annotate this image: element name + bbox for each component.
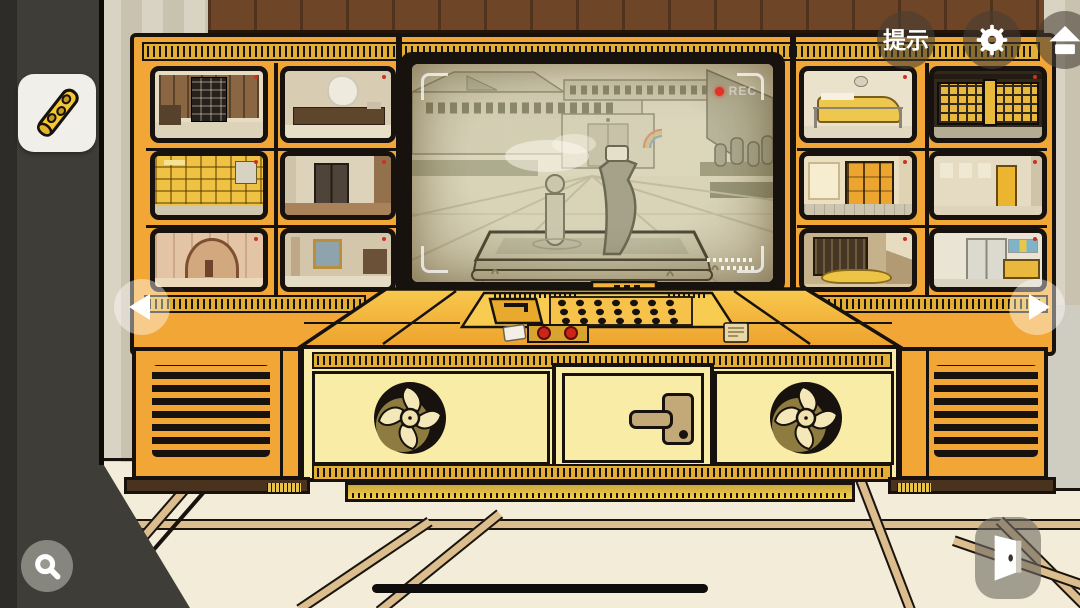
camera-feed-screen: REC bbox=[412, 64, 773, 282]
timestamp-dots bbox=[721, 266, 755, 270]
home-indicator bbox=[372, 584, 708, 593]
game-screen: REC bbox=[0, 0, 1080, 608]
dark-wall-edge bbox=[0, 0, 17, 608]
monitor-l3[interactable] bbox=[150, 151, 268, 220]
red-button[interactable] bbox=[538, 327, 550, 339]
fan-right[interactable] bbox=[767, 379, 845, 457]
monitor-r3[interactable] bbox=[799, 151, 917, 220]
cabinet-divider bbox=[274, 63, 278, 295]
cabinet-base-left bbox=[124, 477, 310, 494]
wall-skirting bbox=[102, 458, 132, 461]
vent-slats bbox=[934, 365, 1038, 457]
base-chip bbox=[267, 483, 301, 492]
desk-base bbox=[345, 482, 855, 502]
white-card[interactable] bbox=[503, 325, 526, 342]
console-pad[interactable] bbox=[490, 299, 542, 323]
desk-right-panel bbox=[714, 371, 894, 465]
nav-right-button[interactable] bbox=[1009, 279, 1065, 335]
floor-tile-line bbox=[854, 475, 915, 608]
rec-dot bbox=[715, 87, 724, 96]
desk-cabinet-door[interactable] bbox=[552, 363, 714, 473]
viewfinder-corner bbox=[421, 73, 448, 100]
monitor-l4[interactable] bbox=[280, 151, 396, 220]
monitor-r2[interactable] bbox=[929, 66, 1047, 143]
right-arrow-icon bbox=[1029, 294, 1050, 320]
wall-corner-line bbox=[99, 0, 104, 465]
vent-slats bbox=[152, 365, 270, 457]
timestamp-dots bbox=[707, 258, 755, 262]
base-chip bbox=[897, 483, 931, 492]
home-icon bbox=[1048, 24, 1080, 56]
gear-icon bbox=[975, 23, 1009, 57]
desk-vent-bottom bbox=[312, 464, 892, 481]
main-security-monitor[interactable]: REC bbox=[400, 52, 785, 294]
monitor-l5[interactable] bbox=[150, 228, 268, 292]
desk-console[interactable] bbox=[288, 281, 912, 351]
floor-tile-line bbox=[296, 517, 432, 608]
monitor-l1[interactable] bbox=[150, 66, 268, 143]
search-button[interactable] bbox=[21, 540, 73, 592]
cabinet-base-right bbox=[888, 477, 1056, 494]
nav-left-button[interactable] bbox=[114, 279, 170, 335]
door-handle[interactable] bbox=[662, 393, 694, 445]
monitor-r4[interactable] bbox=[929, 151, 1047, 220]
low-cabinet-left bbox=[132, 347, 302, 480]
exit-door-button[interactable] bbox=[975, 517, 1041, 599]
red-button-panel bbox=[528, 325, 588, 342]
hint-label: 提示 bbox=[883, 29, 929, 52]
rec-label: REC bbox=[729, 84, 757, 98]
fan-left[interactable] bbox=[371, 379, 449, 457]
viewfinder-corner bbox=[421, 246, 448, 273]
magnifier-icon bbox=[32, 551, 62, 581]
monitor-l2[interactable] bbox=[280, 66, 396, 143]
cabinet-divider bbox=[926, 351, 929, 476]
notched-rod-item bbox=[28, 84, 86, 142]
floor-tile-line bbox=[85, 519, 1080, 530]
monitor-r1[interactable] bbox=[799, 66, 917, 143]
left-arrow-icon bbox=[129, 294, 150, 320]
low-cabinet-right bbox=[898, 347, 1048, 480]
cabinet-divider bbox=[280, 351, 283, 476]
door-icon bbox=[988, 531, 1028, 585]
desk-left-panel bbox=[312, 371, 550, 465]
settings-button[interactable] bbox=[963, 11, 1021, 69]
desk-front bbox=[300, 345, 900, 482]
red-button[interactable] bbox=[565, 327, 577, 339]
rec-indicator: REC bbox=[715, 84, 757, 98]
hint-button[interactable]: 提示 bbox=[877, 11, 935, 69]
inventory-slot[interactable] bbox=[18, 74, 96, 152]
